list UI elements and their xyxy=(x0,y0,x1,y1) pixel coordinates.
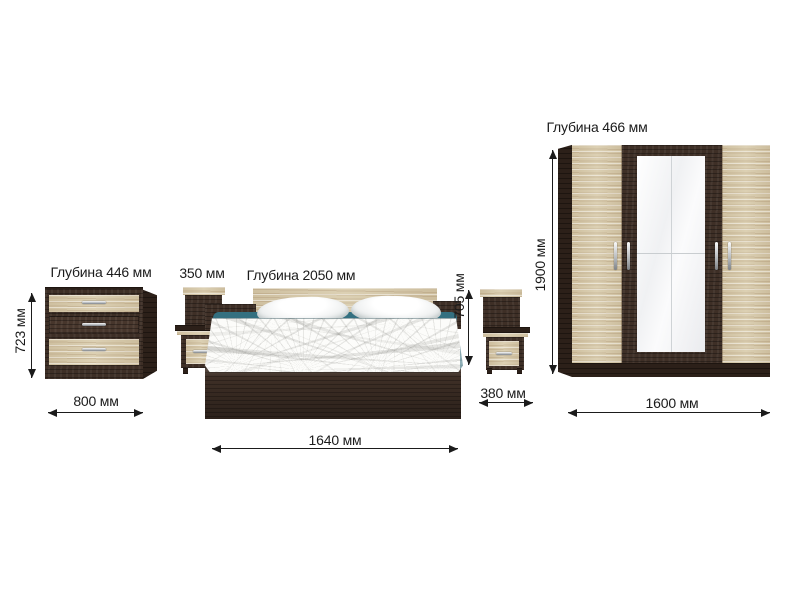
bed xyxy=(203,286,463,419)
nightstand-left-foot xyxy=(183,368,188,374)
nightstand-right-foot xyxy=(487,368,492,374)
nightstand-right-cabinet xyxy=(486,337,524,370)
bed-width-label: 1640 мм xyxy=(309,432,362,448)
wardrobe-mirror-seam xyxy=(637,253,705,254)
wardrobe-height-dimension-line xyxy=(552,150,553,374)
wardrobe-width-dimension-line xyxy=(568,412,770,413)
wardrobe-handle-2 xyxy=(627,242,630,270)
dresser-height-dimension-line xyxy=(31,293,32,378)
wardrobe-width-label: 1600 мм xyxy=(646,395,699,411)
wardrobe-plinth xyxy=(572,363,770,377)
nightstand-right-top-panel xyxy=(480,289,522,297)
bed-duvet xyxy=(205,318,463,372)
wardrobe-handle-1 xyxy=(614,242,617,270)
dresser-drawer-2-handle xyxy=(82,323,106,326)
dresser-depth-label: Глубина 446 мм xyxy=(50,264,151,280)
bed-frame xyxy=(205,368,461,419)
nightstand-right-width-dimension-line xyxy=(479,402,533,403)
dresser-drawer-3 xyxy=(49,339,139,365)
bed-height-dimension-line xyxy=(468,290,469,365)
bed-depth-label: Глубина 2050 мм xyxy=(247,267,356,283)
wardrobe-handle-4 xyxy=(728,242,731,270)
wardrobe-front xyxy=(572,145,770,377)
wardrobe-mirror-doors xyxy=(622,145,722,363)
wardrobe-mirror xyxy=(637,156,705,352)
wardrobe-height-label: 1900 мм xyxy=(532,239,548,292)
wardrobe-mirror-divider xyxy=(671,156,672,352)
nightstand-left-width-label: 350 мм xyxy=(179,265,224,281)
wardrobe-depth-label: Глубина 466 мм xyxy=(546,119,647,135)
nightstand-right-drawer-handle xyxy=(496,352,512,355)
wardrobe-handle-3 xyxy=(715,242,718,270)
wardrobe-side-panel xyxy=(558,143,572,377)
dresser-drawer-3-handle xyxy=(82,348,106,351)
wardrobe xyxy=(558,143,770,377)
dresser-width-dimension-line xyxy=(48,412,143,413)
dresser-drawer-1-handle xyxy=(82,301,106,304)
nightstand-right-foot xyxy=(517,368,522,374)
dresser xyxy=(45,287,157,379)
nightstand-right xyxy=(474,289,531,375)
dresser-height-label: 723 мм xyxy=(12,308,28,353)
dresser-front xyxy=(45,289,143,379)
bedroom-set-dimensions-diagram: Глубина 446 мм 723 мм 800 мм 350 мм Глуб… xyxy=(0,0,791,593)
dresser-width-label: 800 мм xyxy=(73,393,118,409)
dresser-side-panel xyxy=(143,287,157,379)
bed-width-dimension-line xyxy=(212,448,458,449)
